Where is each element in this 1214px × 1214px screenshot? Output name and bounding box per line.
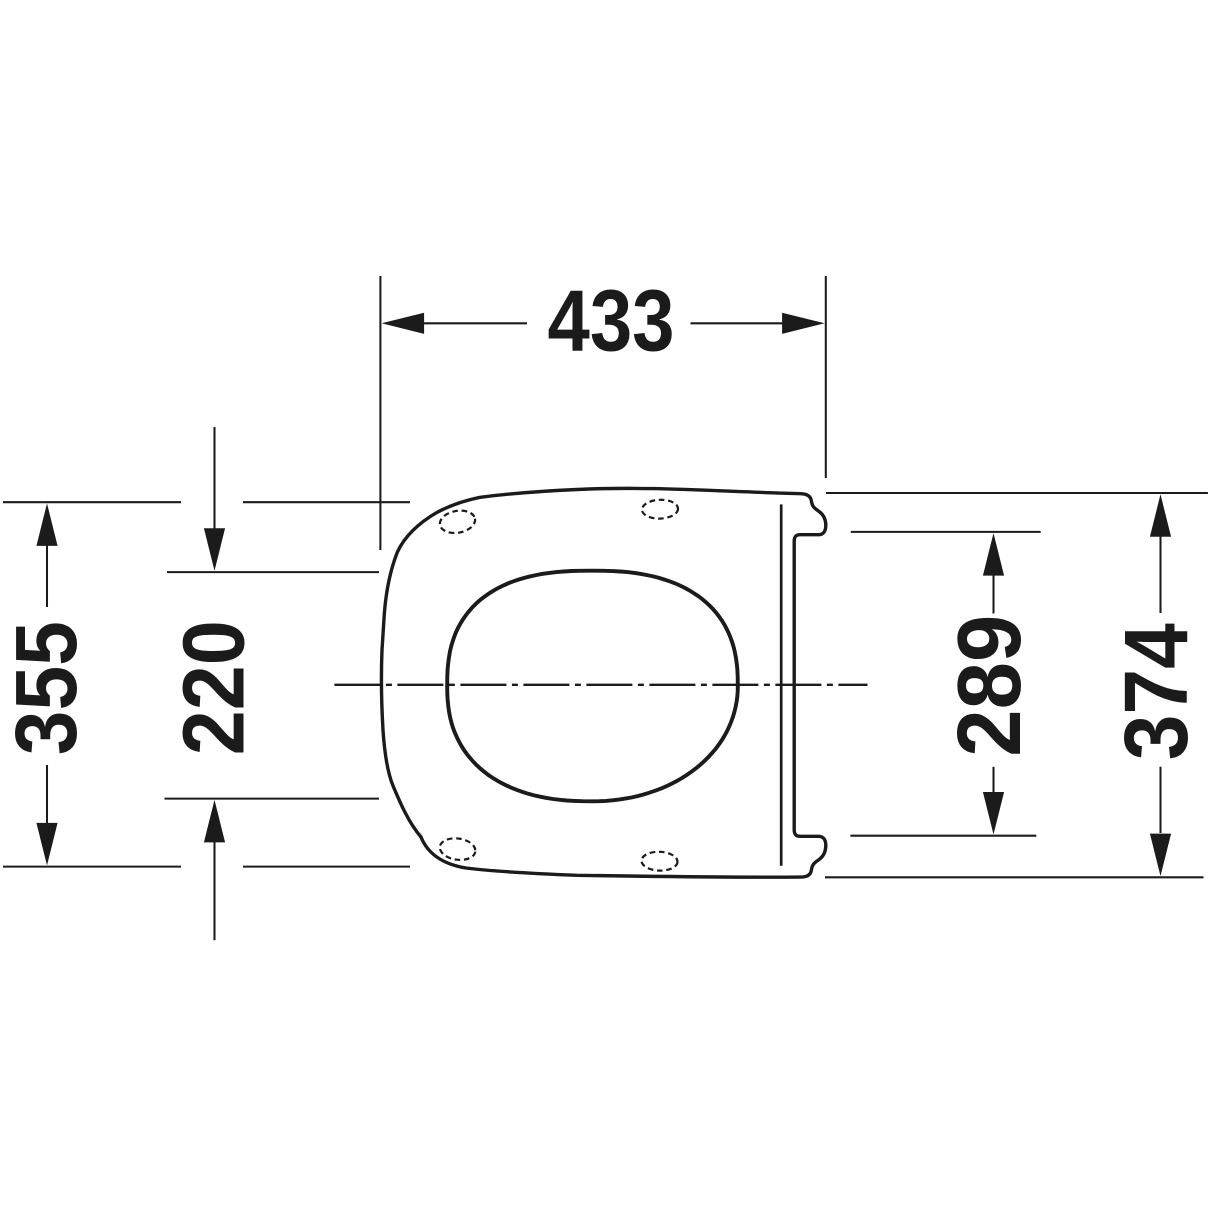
svg-text:433: 433 xyxy=(548,272,675,369)
svg-text:289: 289 xyxy=(940,615,1040,757)
svg-text:220: 220 xyxy=(165,620,262,755)
svg-text:374: 374 xyxy=(1107,623,1207,760)
svg-text:355: 355 xyxy=(0,621,95,755)
